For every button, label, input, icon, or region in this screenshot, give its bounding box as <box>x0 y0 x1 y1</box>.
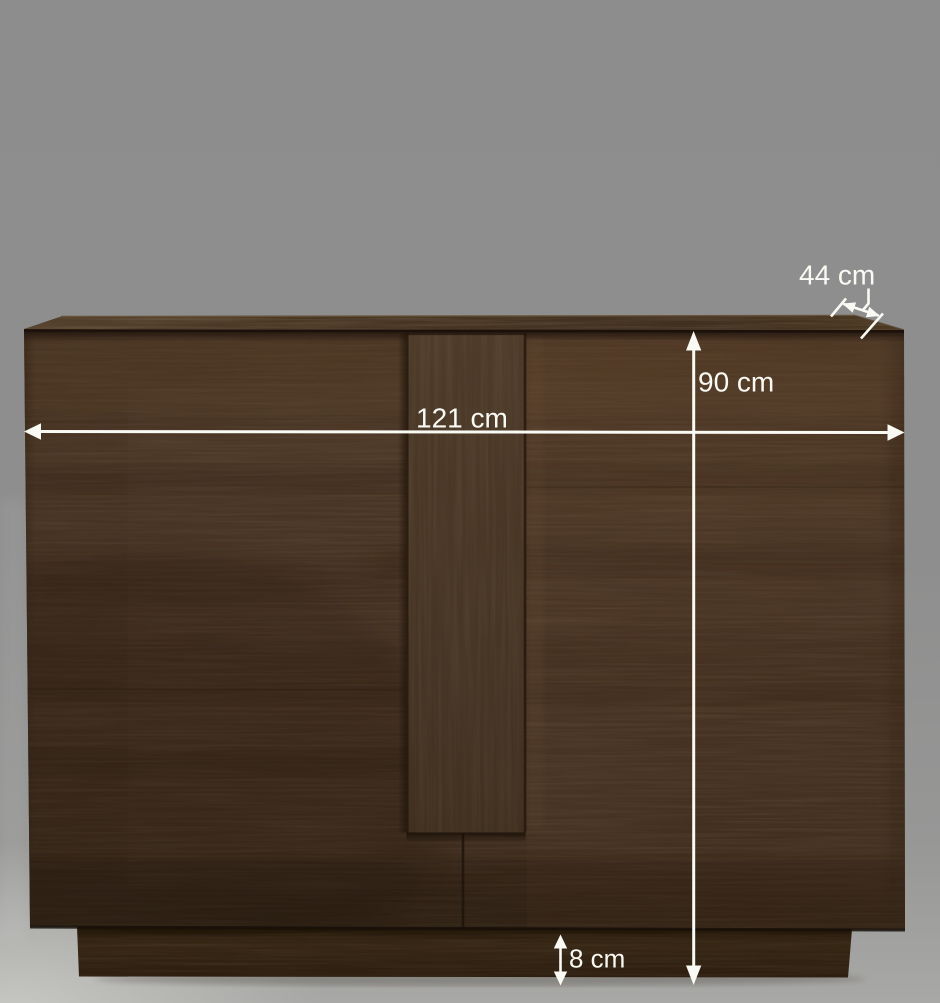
svg-text:8 cm: 8 cm <box>569 944 625 974</box>
svg-text:44 cm: 44 cm <box>799 260 875 291</box>
svg-text:90 cm: 90 cm <box>698 367 774 398</box>
svg-text:121 cm: 121 cm <box>416 403 508 434</box>
